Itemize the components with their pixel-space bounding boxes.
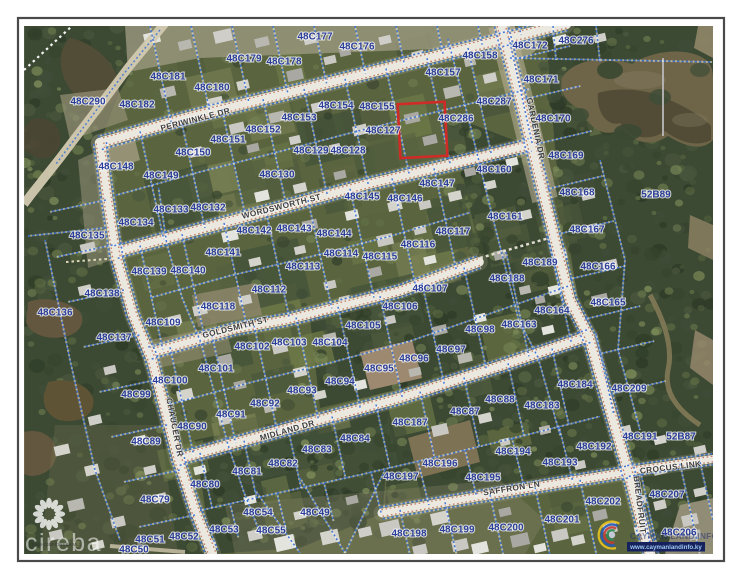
svg-text:48C49: 48C49 xyxy=(300,508,330,519)
svg-text:48C143: 48C143 xyxy=(276,224,311,235)
svg-text:48C138: 48C138 xyxy=(84,289,119,300)
svg-text:48C187: 48C187 xyxy=(392,418,427,429)
svg-text:48C164: 48C164 xyxy=(534,306,569,317)
svg-text:48C152: 48C152 xyxy=(245,125,280,136)
svg-text:48C166: 48C166 xyxy=(580,262,615,273)
svg-text:48C146: 48C146 xyxy=(387,194,422,205)
svg-text:48C194: 48C194 xyxy=(495,447,530,458)
svg-text:48C196: 48C196 xyxy=(422,459,457,470)
svg-text:48C88: 48C88 xyxy=(485,395,515,406)
svg-text:48C207: 48C207 xyxy=(649,490,684,501)
svg-text:48C157: 48C157 xyxy=(425,68,460,79)
svg-text:48C163: 48C163 xyxy=(501,320,536,331)
svg-text:www.caymanlandinfo.ky: www.caymanlandinfo.ky xyxy=(629,544,702,551)
svg-text:48C87: 48C87 xyxy=(450,407,480,418)
svg-text:48C202: 48C202 xyxy=(585,497,620,508)
svg-text:48C197: 48C197 xyxy=(383,472,418,483)
svg-text:48C137: 48C137 xyxy=(96,333,131,344)
svg-text:48C135: 48C135 xyxy=(69,231,104,242)
svg-text:48C80: 48C80 xyxy=(190,480,220,491)
svg-text:48C180: 48C180 xyxy=(194,83,229,94)
svg-text:48C153: 48C153 xyxy=(281,113,316,124)
svg-text:48C195: 48C195 xyxy=(465,473,500,484)
svg-text:48C183: 48C183 xyxy=(524,401,559,412)
svg-text:48C100: 48C100 xyxy=(152,376,187,387)
svg-text:48C95: 48C95 xyxy=(364,364,394,375)
svg-text:48C104: 48C104 xyxy=(312,338,347,349)
svg-text:48C90: 48C90 xyxy=(177,422,207,433)
svg-text:48C172: 48C172 xyxy=(512,41,547,52)
svg-text:48C89: 48C89 xyxy=(131,437,161,448)
svg-text:48C193: 48C193 xyxy=(542,458,577,469)
svg-text:48C101: 48C101 xyxy=(198,364,233,375)
svg-text:48C107: 48C107 xyxy=(412,284,447,295)
svg-text:48C158: 48C158 xyxy=(462,51,497,62)
svg-text:48C176: 48C176 xyxy=(339,42,374,53)
svg-text:48C169: 48C169 xyxy=(548,151,583,162)
svg-text:48C114: 48C114 xyxy=(324,249,359,260)
svg-text:48C134: 48C134 xyxy=(118,218,153,229)
svg-text:48C191: 48C191 xyxy=(622,432,657,443)
svg-text:48C84: 48C84 xyxy=(340,434,370,445)
svg-text:48C92: 48C92 xyxy=(250,399,280,410)
svg-text:48C198: 48C198 xyxy=(391,529,426,540)
svg-text:48C136: 48C136 xyxy=(37,308,72,319)
svg-text:48C105: 48C105 xyxy=(345,321,380,332)
svg-text:48C113: 48C113 xyxy=(286,262,321,273)
svg-text:48C141: 48C141 xyxy=(205,248,240,259)
svg-text:48C200: 48C200 xyxy=(488,523,523,534)
svg-text:48C140: 48C140 xyxy=(170,266,205,277)
svg-text:48C81: 48C81 xyxy=(232,467,262,478)
svg-text:48C181: 48C181 xyxy=(150,72,185,83)
svg-text:48C192: 48C192 xyxy=(576,442,611,453)
svg-text:48C188: 48C188 xyxy=(489,274,524,285)
svg-text:48C161: 48C161 xyxy=(487,212,522,223)
svg-text:48C182: 48C182 xyxy=(119,100,154,111)
svg-text:48C160: 48C160 xyxy=(476,165,511,176)
svg-text:48C128: 48C128 xyxy=(330,146,365,157)
svg-text:48C50: 48C50 xyxy=(119,545,149,556)
svg-text:48C144: 48C144 xyxy=(316,229,351,240)
svg-text:1998-2018 CIREBA MLS: 1998-2018 CIREBA MLS xyxy=(32,542,82,547)
svg-text:48C287: 48C287 xyxy=(476,97,511,108)
svg-text:48C79: 48C79 xyxy=(140,495,170,506)
svg-text:48C276: 48C276 xyxy=(558,36,593,47)
svg-text:48C286: 48C286 xyxy=(438,114,473,125)
svg-text:48C154: 48C154 xyxy=(318,101,353,112)
svg-text:48C83: 48C83 xyxy=(302,445,332,456)
svg-text:48C94: 48C94 xyxy=(325,377,355,388)
svg-text:48C148: 48C148 xyxy=(98,162,133,173)
svg-text:48C102: 48C102 xyxy=(234,342,269,353)
svg-text:48C130: 48C130 xyxy=(259,170,294,181)
svg-text:48C209: 48C209 xyxy=(611,384,646,395)
svg-text:48C167: 48C167 xyxy=(569,225,604,236)
svg-text:48C106: 48C106 xyxy=(382,302,417,313)
svg-text:48C117: 48C117 xyxy=(436,227,471,238)
svg-text:48C139: 48C139 xyxy=(131,267,166,278)
svg-text:48C116: 48C116 xyxy=(401,240,436,251)
svg-text:48C178: 48C178 xyxy=(266,57,301,68)
svg-text:48C150: 48C150 xyxy=(175,148,210,159)
svg-text:52B89: 52B89 xyxy=(641,190,671,201)
svg-text:48C97: 48C97 xyxy=(436,345,466,356)
svg-text:52B87: 52B87 xyxy=(666,432,696,443)
svg-text:48C168: 48C168 xyxy=(559,188,594,199)
svg-text:48C149: 48C149 xyxy=(143,171,178,182)
svg-text:48C171: 48C171 xyxy=(523,75,558,86)
svg-text:48C145: 48C145 xyxy=(344,192,379,203)
svg-text:48C201: 48C201 xyxy=(544,515,579,526)
svg-text:48C189: 48C189 xyxy=(522,258,557,269)
svg-text:48C151: 48C151 xyxy=(210,135,245,146)
svg-text:48C129: 48C129 xyxy=(293,146,328,157)
svg-text:48C115: 48C115 xyxy=(363,252,398,263)
svg-text:48C132: 48C132 xyxy=(190,203,225,214)
svg-text:48C96: 48C96 xyxy=(399,354,429,365)
svg-text:48C177: 48C177 xyxy=(297,32,332,43)
svg-text:48C147: 48C147 xyxy=(419,179,454,190)
svg-text:CAYMAN LAND INFO: CAYMAN LAND INFO xyxy=(630,531,719,541)
svg-text:48C184: 48C184 xyxy=(557,380,592,391)
svg-text:48C103: 48C103 xyxy=(271,338,306,349)
svg-text:48C99: 48C99 xyxy=(121,390,151,401)
svg-text:48C170: 48C170 xyxy=(535,114,570,125)
svg-text:48C93: 48C93 xyxy=(287,386,317,397)
svg-text:48C54: 48C54 xyxy=(243,508,273,519)
svg-text:48C82: 48C82 xyxy=(268,459,298,470)
svg-text:48C118: 48C118 xyxy=(201,302,236,313)
svg-text:48C199: 48C199 xyxy=(439,525,474,536)
svg-text:48C98: 48C98 xyxy=(465,325,495,336)
svg-text:48C165: 48C165 xyxy=(590,298,625,309)
svg-text:48C133: 48C133 xyxy=(153,205,188,216)
svg-text:48C142: 48C142 xyxy=(236,226,271,237)
svg-text:48C53: 48C53 xyxy=(209,525,239,536)
svg-text:48C290: 48C290 xyxy=(70,97,105,108)
svg-text:48C52: 48C52 xyxy=(169,532,199,543)
svg-text:48C91: 48C91 xyxy=(216,410,246,421)
svg-text:48C55: 48C55 xyxy=(256,526,286,537)
svg-text:48C127: 48C127 xyxy=(365,126,400,137)
svg-text:48C109: 48C109 xyxy=(145,318,180,329)
svg-text:48C179: 48C179 xyxy=(226,54,261,65)
svg-text:48C112: 48C112 xyxy=(252,285,287,296)
svg-text:48C155: 48C155 xyxy=(359,102,394,113)
